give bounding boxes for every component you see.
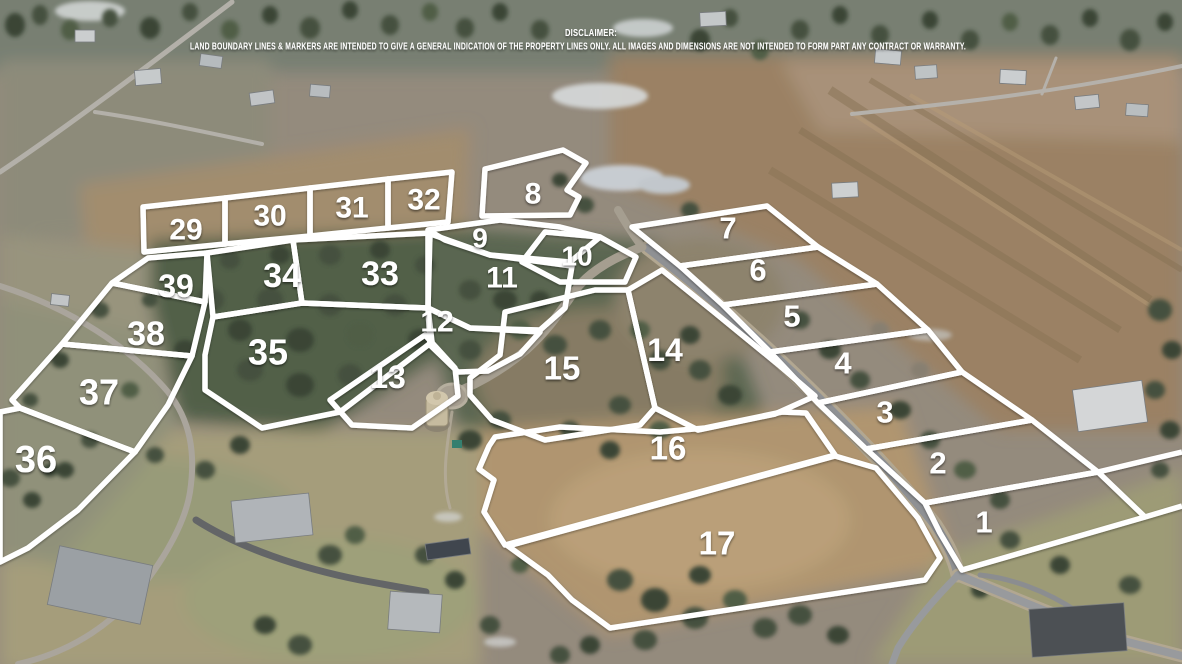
lot-2-number: 2 (929, 446, 946, 481)
lot-15-number: 15 (544, 350, 581, 387)
lot-1-number: 1 (975, 505, 992, 540)
lot-39-number: 39 (158, 268, 194, 304)
aerial-photo-canvas: 1234567891011121314151617293031323334353… (0, 0, 1182, 664)
lot-30-number: 30 (253, 200, 286, 233)
lot-4-number: 4 (834, 346, 852, 381)
lot-34-number: 34 (263, 257, 301, 295)
disclaimer-body: LAND BOUNDARY LINES & MARKERS ARE INTEND… (190, 42, 966, 53)
lot-9-number: 9 (472, 223, 488, 254)
aerial-lot-map: 1234567891011121314151617293031323334353… (0, 0, 1182, 664)
lot-36-number: 36 (15, 439, 57, 481)
disclaimer-title: DISCLAIMER: (565, 28, 617, 39)
lot-35-number: 35 (248, 332, 288, 373)
lot-6-number: 6 (749, 253, 766, 288)
lot-8-number: 8 (525, 178, 542, 211)
lot-37-number: 37 (79, 372, 119, 413)
lot-12-number: 12 (420, 306, 453, 339)
lot-29-number: 29 (169, 214, 202, 247)
atmosphere-tint (0, 0, 1182, 664)
lot-32-number: 32 (407, 184, 440, 217)
lot-16-number: 16 (650, 430, 687, 467)
lot-38-number: 38 (127, 315, 165, 353)
lot-31-number: 31 (335, 192, 368, 225)
lot-17-number: 17 (699, 525, 736, 562)
lot-7-number: 7 (719, 211, 736, 246)
lot-13-number: 13 (370, 359, 406, 395)
lot-5-number: 5 (783, 299, 800, 334)
lot-3-number: 3 (876, 395, 893, 430)
lot-11-number: 11 (486, 262, 518, 295)
lot-33-number: 33 (361, 255, 399, 293)
lot-10-number: 10 (561, 241, 592, 272)
lot-14-number: 14 (647, 332, 683, 368)
